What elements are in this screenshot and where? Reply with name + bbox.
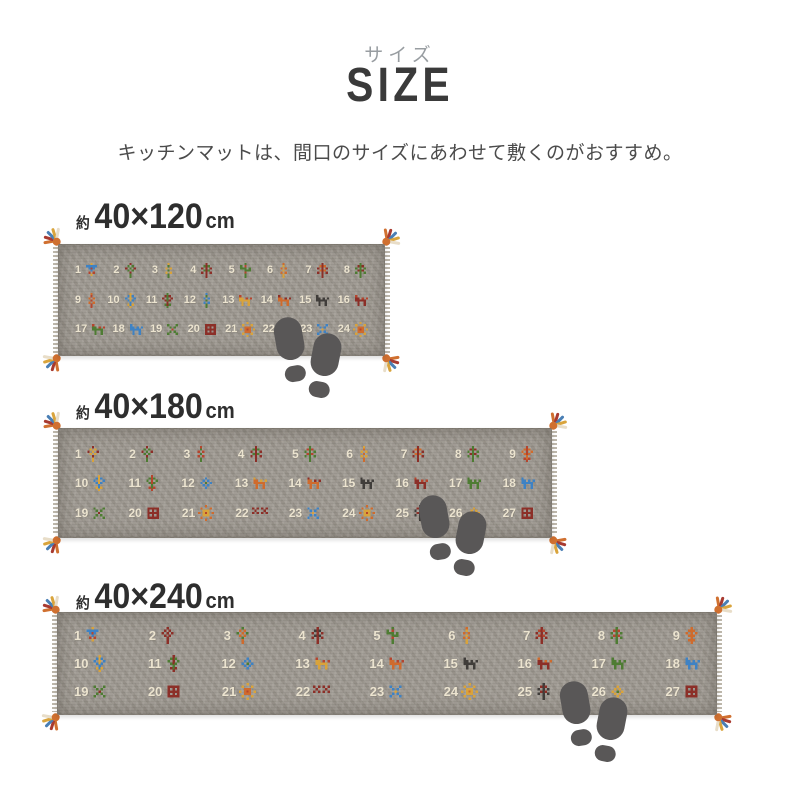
rug-cell-number: 9: [509, 448, 516, 460]
rug-cell-number: 21: [225, 324, 237, 335]
rug-cell: 20: [128, 505, 160, 521]
rug-cell: 20: [188, 322, 218, 337]
motif-flower-icon: [139, 446, 155, 462]
rug-cell-number: 18: [666, 657, 680, 670]
rug-cell: 12: [184, 293, 214, 308]
motif-plant-icon: [161, 263, 176, 278]
footprints-icon: [410, 490, 490, 594]
rug-cell: 6: [267, 263, 291, 278]
rug-cell-number: 4: [190, 265, 196, 276]
rug-cell: 27: [503, 505, 535, 521]
motif-cactus-icon: [238, 263, 253, 278]
rug-cell-number: 3: [184, 448, 191, 460]
motif-animal-icon: [683, 655, 700, 672]
rug-cell: 10: [75, 475, 107, 491]
rug-cell: 21: [182, 505, 214, 521]
motif-animal-icon: [276, 293, 291, 308]
rug-row: 101112131415161718: [70, 655, 704, 672]
footprints-icon: [265, 312, 345, 416]
motif-tree-icon: [535, 683, 552, 700]
motif-tree-icon: [410, 446, 426, 462]
rug-cell-number: 15: [342, 477, 355, 489]
rug-cell: 18: [666, 655, 700, 672]
rug-cell-number: 8: [455, 448, 462, 460]
motif-bird-icon: [84, 627, 101, 644]
rug-cell: 9: [509, 446, 535, 462]
motif-vase-icon: [91, 475, 107, 491]
rug-cell: 23: [370, 683, 404, 700]
motif-tree-icon: [248, 446, 264, 462]
motif-animal-icon: [465, 475, 481, 491]
motif-flower-icon: [85, 446, 101, 462]
motif-tree-icon: [315, 263, 330, 278]
rug-cell-number: 3: [152, 265, 158, 276]
rug-cell-number: 23: [289, 507, 302, 519]
motif-gul-icon: [683, 683, 700, 700]
motif-tree-icon: [302, 446, 318, 462]
rug-cell-number: 19: [75, 507, 88, 519]
rug-row: 123456789: [70, 627, 704, 644]
rug-cell-number: 12: [181, 477, 194, 489]
rug-cell: 13: [295, 655, 329, 672]
rug-cell-number: 27: [503, 507, 516, 519]
rug-cell-number: 15: [443, 657, 457, 670]
motif-animal-icon: [128, 322, 143, 337]
footprints-icon: [551, 676, 631, 780]
motif-animal-icon: [237, 293, 252, 308]
rug-cell-number: 2: [113, 265, 119, 276]
motif-vase-icon: [91, 655, 108, 672]
motif-tree-icon: [608, 627, 625, 644]
rug-cell-number: 14: [288, 477, 301, 489]
rug-cell: 11: [146, 293, 176, 308]
motif-gul-icon: [519, 505, 535, 521]
size-unit: cm: [206, 208, 235, 234]
rug-cell-number: 9: [673, 629, 680, 642]
motif-plant-icon: [458, 627, 475, 644]
motif-diamond-icon: [239, 655, 256, 672]
rug-cell-number: 16: [338, 295, 350, 306]
motif-animal-icon: [251, 475, 267, 491]
rug-cell-number: 17: [592, 657, 606, 670]
motif-gul-icon: [145, 505, 161, 521]
motif-gul-icon: [165, 683, 182, 700]
rug-cell: 11: [148, 655, 182, 672]
rug-cell-number: 19: [74, 685, 88, 698]
rug-cell-number: 19: [150, 324, 162, 335]
rug-cell-number: 27: [666, 685, 680, 698]
fringe-right: [385, 247, 390, 353]
rug-cell-number: 11: [148, 657, 162, 670]
rug-cell: 15: [299, 293, 329, 308]
rug-cell-number: 2: [129, 448, 136, 460]
rug-cell: 6: [346, 446, 372, 462]
size-unit: cm: [206, 398, 235, 424]
rug-cell-number: 5: [229, 265, 235, 276]
rug-cell-number: 2: [149, 629, 156, 642]
motif-sun-icon: [240, 322, 255, 337]
rug-cell: 7: [305, 263, 329, 278]
rug-cell: 5: [292, 446, 318, 462]
rug-row: 910111213141516: [71, 293, 372, 308]
rug-cell-number: 4: [299, 629, 306, 642]
rug-cell-number: 7: [305, 265, 311, 276]
motif-animal-icon: [461, 655, 478, 672]
rug-cell: 8: [598, 627, 625, 644]
motif-animal-icon: [90, 322, 105, 337]
rug-cell-number: 24: [342, 507, 355, 519]
motif-plant-icon: [84, 293, 99, 308]
rug-cell: 23: [289, 505, 321, 521]
rug-cell-number: 8: [344, 265, 350, 276]
rug-cell: 3: [152, 263, 176, 278]
rug-cell: 19: [75, 505, 107, 521]
rug-cell: 21: [222, 683, 256, 700]
rug-cell-number: 15: [299, 295, 311, 306]
rug-cell-number: 13: [222, 295, 234, 306]
motif-x-icon: [91, 505, 107, 521]
rug-cell: 21: [225, 322, 255, 337]
motif-animal-icon: [314, 293, 329, 308]
rug-cell: 9: [673, 627, 700, 644]
rug-cell: 19: [150, 322, 180, 337]
rug-cell-number: 22: [235, 507, 248, 519]
rug-cell-number: 4: [238, 448, 245, 460]
rug-cell: 9: [75, 293, 99, 308]
motif-sun-icon: [359, 505, 375, 521]
rug-cell: 16: [517, 655, 551, 672]
rug-cell-number: 6: [267, 265, 273, 276]
fringe-right: [717, 615, 722, 712]
motif-cactus-icon: [384, 627, 401, 644]
rug-cell-number: 17: [449, 477, 462, 489]
motif-xx-icon: [313, 683, 330, 700]
rug-cell: 3: [224, 627, 251, 644]
motif-x-icon: [305, 505, 321, 521]
rug-cell-number: 14: [261, 295, 273, 306]
size-dimensions: 40×120: [94, 197, 202, 237]
motif-vase-icon: [160, 293, 175, 308]
rug-row: 12345678: [71, 263, 372, 278]
size-label-40x180: 約40×180cm: [76, 387, 235, 427]
rug-cell-number: 3: [224, 629, 231, 642]
motif-animal-icon: [305, 475, 321, 491]
rug-cell: 19: [74, 683, 108, 700]
motif-sun-icon: [461, 683, 478, 700]
rug-cell: 2: [149, 627, 176, 644]
rug-cell-number: 12: [221, 657, 235, 670]
motif-vase-icon: [123, 293, 138, 308]
rug-cell-number: 16: [517, 657, 531, 670]
motif-vase-icon: [144, 475, 160, 491]
approx-prefix: 約: [76, 212, 90, 233]
motif-flower-icon: [159, 627, 176, 644]
rug-cell-number: 14: [369, 657, 383, 670]
rug-cell-number: 11: [146, 295, 158, 306]
rug-cell-number: 20: [128, 507, 141, 519]
rug-cell: 8: [344, 263, 368, 278]
rug-cell: 2: [113, 263, 137, 278]
rug-cell-number: 5: [292, 448, 299, 460]
size-dimensions: 40×180: [94, 387, 202, 427]
rug-cell: 12: [221, 655, 255, 672]
rug-cell-number: 21: [222, 685, 236, 698]
rug-cell: 7: [401, 446, 427, 462]
motif-bird-icon: [84, 263, 99, 278]
product-size-infographic: サイズ SIZE キッチンマットは、間口のサイズにあわせて敷くのがおすすめ。 約…: [0, 0, 800, 800]
rug-cell: 7: [523, 627, 550, 644]
size-dimensions: 40×240: [94, 577, 202, 617]
rug-cell: 10: [107, 293, 137, 308]
rug-cell: 6: [448, 627, 475, 644]
rug-cell: 1: [75, 446, 101, 462]
rug-cell: 16: [338, 293, 368, 308]
rug-cell-number: 10: [75, 477, 88, 489]
size-recommendation-text: キッチンマットは、間口のサイズにあわせて敷くのがおすすめ。: [0, 138, 800, 165]
rug-cell: 18: [113, 322, 143, 337]
rug-cell-number: 1: [75, 265, 81, 276]
rug-row: 123456789: [71, 446, 539, 462]
rug-cell: 2: [129, 446, 155, 462]
motif-diamond-icon: [198, 475, 214, 491]
rug-cell: 17: [449, 475, 481, 491]
rug-cell: 15: [342, 475, 374, 491]
rug-cell-number: 18: [503, 477, 516, 489]
rug-cell: 15: [443, 655, 477, 672]
rug-cell-number: 8: [598, 629, 605, 642]
approx-prefix: 約: [76, 402, 90, 423]
rug-cell-number: 17: [75, 324, 87, 335]
rug-cell: 14: [288, 475, 320, 491]
motif-flower-icon: [123, 263, 138, 278]
rug-cell: 3: [184, 446, 210, 462]
rug-cell: 14: [261, 293, 291, 308]
rug-cell: 4: [238, 446, 264, 462]
rug-cell: 25: [518, 683, 552, 700]
motif-vase-icon: [165, 655, 182, 672]
motif-sun-icon: [353, 322, 368, 337]
rug-cell: 5: [229, 263, 253, 278]
rug-cell: 13: [222, 293, 252, 308]
rug-cell: 24: [342, 505, 374, 521]
rug-cell: 4: [190, 263, 214, 278]
rug-cell: 12: [181, 475, 213, 491]
motif-x-icon: [165, 322, 180, 337]
motif-tree-icon: [353, 263, 368, 278]
motif-plant-icon: [193, 446, 209, 462]
motif-x-icon: [387, 683, 404, 700]
motif-gul-icon: [203, 322, 218, 337]
rug-cell: 13: [235, 475, 267, 491]
motif-flower-icon: [234, 627, 251, 644]
rug-cell-number: 24: [444, 685, 458, 698]
fringe-right: [552, 431, 557, 535]
page-title: SIZE: [60, 62, 740, 110]
motif-plant-icon: [199, 293, 214, 308]
motif-plant-icon: [356, 446, 372, 462]
motif-animal-icon: [412, 475, 428, 491]
rug-cell-number: 21: [182, 507, 195, 519]
rug-cell: 27: [666, 683, 700, 700]
size-label-40x120: 約40×120cm: [76, 197, 235, 237]
rug-cell-number: 7: [401, 448, 408, 460]
rug-cell-number: 23: [370, 685, 384, 698]
rug-cell-number: 6: [346, 448, 353, 460]
motif-tree-icon: [465, 446, 481, 462]
rug-cell: 20: [148, 683, 182, 700]
size-unit: cm: [206, 588, 235, 614]
rug-cell-number: 10: [74, 657, 88, 670]
rug-cell-number: 25: [396, 507, 409, 519]
rug-cell-number: 1: [74, 629, 81, 642]
motif-vase-icon: [683, 627, 700, 644]
rug-cell-number: 7: [523, 629, 530, 642]
rug-cell: 10: [74, 655, 108, 672]
rug-cell-number: 9: [75, 295, 81, 306]
motif-animal-icon: [609, 655, 626, 672]
rug-cell: 14: [369, 655, 403, 672]
motif-xx-icon: [252, 505, 268, 521]
rug-cell-number: 5: [373, 629, 380, 642]
rug-row: 101112131415161718: [71, 475, 539, 491]
rug-cell-number: 22: [296, 685, 310, 698]
motif-vase-icon: [519, 446, 535, 462]
rug-cell: 24: [444, 683, 478, 700]
rug-cell: 1: [74, 627, 101, 644]
rug-cell: 17: [75, 322, 105, 337]
approx-prefix: 約: [76, 592, 90, 613]
motif-tree-icon: [309, 627, 326, 644]
rug-cell-number: 6: [448, 629, 455, 642]
rug-cell-number: 20: [188, 324, 200, 335]
rug-cell: 5: [373, 627, 400, 644]
rug-cell: 22: [296, 683, 330, 700]
rug-cell: 22: [235, 505, 267, 521]
rug-cell: 1: [75, 263, 99, 278]
motif-animal-icon: [519, 475, 535, 491]
rug-cell-number: 13: [235, 477, 248, 489]
rug-cell-number: 1: [75, 448, 82, 460]
motif-animal-icon: [535, 655, 552, 672]
motif-animal-icon: [358, 475, 374, 491]
motif-sun-icon: [239, 683, 256, 700]
rug-cell-number: 13: [295, 657, 309, 670]
motif-sun-icon: [198, 505, 214, 521]
rug-cell: 16: [396, 475, 428, 491]
motif-animal-icon: [353, 293, 368, 308]
rug-cell-number: 12: [184, 295, 196, 306]
rug-cell-number: 25: [518, 685, 532, 698]
rug-cell-number: 16: [396, 477, 409, 489]
rug-cell-number: 20: [148, 685, 162, 698]
motif-plant-icon: [276, 263, 291, 278]
motif-tree-icon: [199, 263, 214, 278]
motif-animal-icon: [387, 655, 404, 672]
rug-cell-number: 10: [107, 295, 119, 306]
rug-cell: 8: [455, 446, 481, 462]
rug-cell: 17: [592, 655, 626, 672]
motif-animal-icon: [313, 655, 330, 672]
rug-cell: 11: [129, 475, 161, 491]
size-label-40x240: 約40×240cm: [76, 577, 235, 617]
motif-tree-icon: [533, 627, 550, 644]
rug-cell-number: 18: [113, 324, 125, 335]
rug-cell: 4: [299, 627, 326, 644]
rug-cell: 18: [503, 475, 535, 491]
motif-x-icon: [91, 683, 108, 700]
rug-cell-number: 11: [129, 477, 142, 489]
